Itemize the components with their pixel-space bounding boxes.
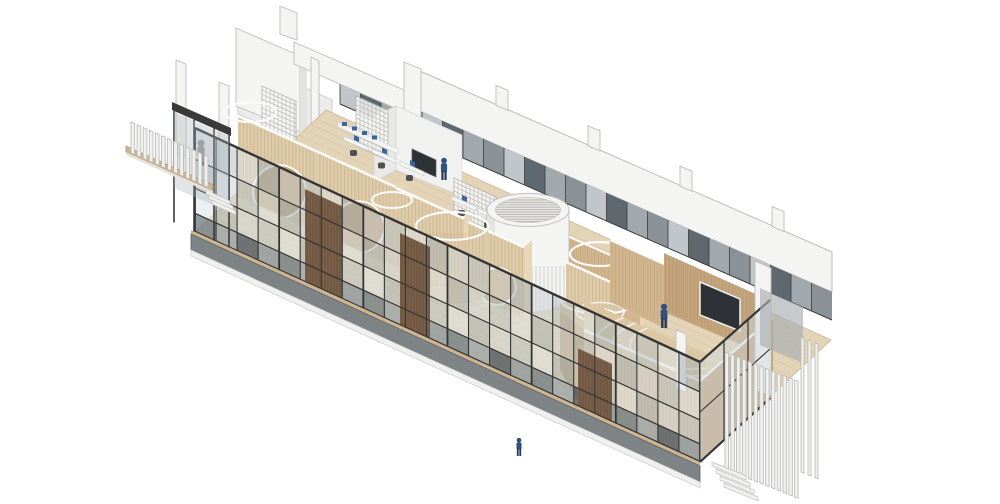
- person-head: [441, 158, 447, 164]
- person-leg: [517, 449, 519, 456]
- tall-louver-fin: [808, 340, 811, 476]
- person-leg: [664, 318, 666, 328]
- tall-louver-fin: [815, 343, 818, 479]
- louver-fin: [731, 354, 735, 472]
- louver-fin: [742, 359, 746, 477]
- louver-fin: [737, 357, 741, 475]
- louver-fin: [777, 373, 781, 491]
- louver-fin: [760, 366, 764, 484]
- chair: [406, 175, 413, 181]
- louver-fin: [149, 130, 153, 163]
- louver-fin: [192, 149, 196, 182]
- person-torso: [661, 310, 668, 320]
- axonometric-rendering: [0, 0, 1000, 504]
- shelf-bin: [362, 131, 367, 135]
- louver-fin: [783, 375, 787, 493]
- louver-fin: [155, 133, 159, 166]
- shelf-bin: [342, 122, 347, 126]
- shelf-bin: [372, 136, 377, 140]
- louver-fin: [771, 371, 775, 489]
- louver-fin: [137, 125, 141, 158]
- louver-fin: [162, 136, 166, 169]
- person-torso: [516, 442, 521, 449]
- chair: [378, 163, 385, 169]
- rendering-canvas: [0, 0, 1000, 504]
- person-leg: [661, 318, 663, 328]
- louver-fin: [168, 138, 172, 171]
- louver-fin: [174, 141, 178, 174]
- tall-louver-fin: [801, 337, 804, 473]
- louver-fin: [789, 378, 793, 496]
- louver-fin: [725, 352, 729, 470]
- person-head: [517, 438, 522, 443]
- person-leg: [441, 171, 443, 180]
- louver-fin: [131, 122, 135, 155]
- chair: [350, 150, 357, 156]
- person-torso: [441, 163, 447, 172]
- louver-fin: [143, 128, 147, 161]
- louver-fin: [186, 147, 190, 180]
- louver-fin: [795, 380, 799, 498]
- louver-fin: [198, 152, 202, 185]
- shelf-bin: [352, 127, 357, 131]
- person-leg: [519, 449, 521, 456]
- person-leg: [444, 171, 446, 180]
- louver-fin: [754, 364, 758, 482]
- louver-fin: [204, 155, 208, 188]
- louver-fin: [748, 361, 752, 479]
- person-head: [661, 304, 667, 310]
- louver-fin: [766, 368, 770, 486]
- louver-fin: [180, 144, 184, 177]
